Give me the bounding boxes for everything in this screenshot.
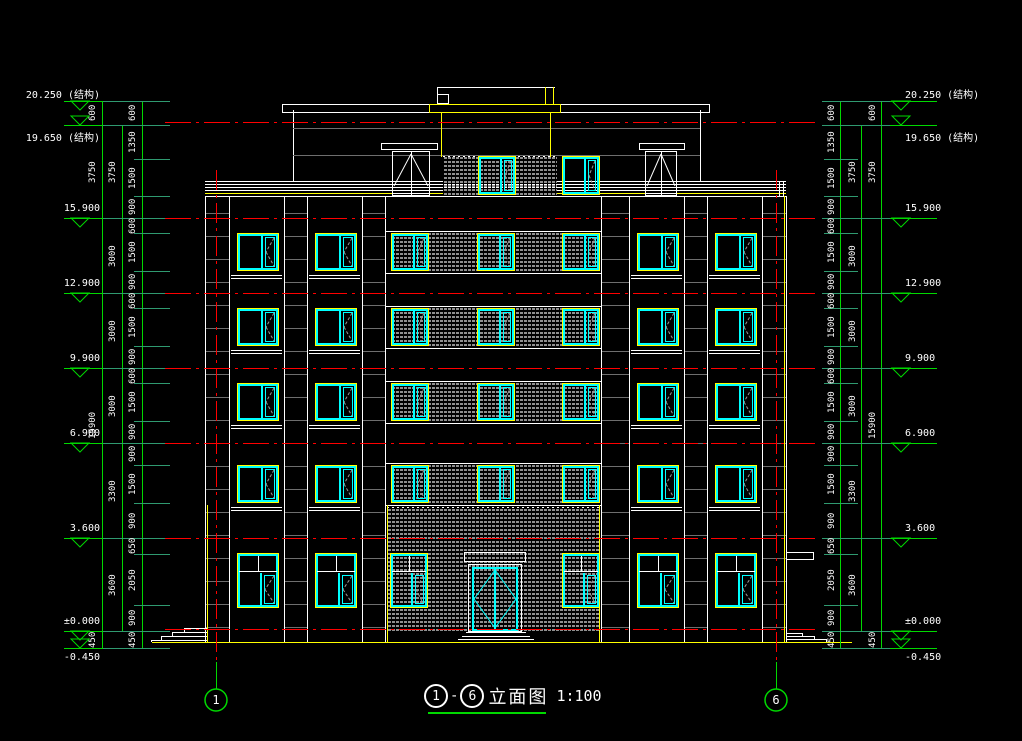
dimension-text: 2050 bbox=[127, 560, 139, 600]
title-scale: 1:100 bbox=[556, 687, 601, 705]
window-casement-pane bbox=[343, 469, 353, 499]
level-marker-text: 6.900 bbox=[2, 428, 100, 439]
spandrel-sill-line bbox=[309, 507, 360, 508]
dimension-tick bbox=[134, 233, 170, 234]
title-axis-bubble-from: 1 bbox=[424, 684, 448, 708]
dimension-tick bbox=[134, 159, 170, 160]
dimension-tick bbox=[134, 605, 170, 606]
spandrel-sill-line bbox=[631, 350, 682, 351]
level-marker-line bbox=[64, 631, 103, 632]
drawing-title: 1 - 6 立面图 1:100 bbox=[424, 683, 602, 709]
spandrel-sill-line bbox=[631, 510, 682, 511]
left-steps-tread bbox=[172, 632, 208, 633]
building-left-edge-yellow bbox=[207, 505, 208, 642]
level-marker-line bbox=[890, 368, 937, 369]
center-section-edge bbox=[601, 196, 602, 642]
dimension-text: 450 bbox=[826, 620, 838, 660]
window-mullion bbox=[739, 236, 741, 268]
spandrel-sill-line bbox=[709, 510, 760, 511]
window-mullion bbox=[661, 311, 663, 343]
window-mullion bbox=[413, 468, 415, 500]
dimension-text: 3000 bbox=[847, 236, 859, 276]
title-text: 立面图 bbox=[488, 683, 548, 709]
side-canopy-slab bbox=[786, 552, 814, 560]
level-marker-line bbox=[64, 125, 103, 126]
level-marker-text: 12.900 bbox=[2, 278, 100, 289]
penthouse-canopy bbox=[639, 143, 685, 150]
window-casement-pane bbox=[417, 312, 425, 342]
level-marker-triangle bbox=[71, 293, 89, 302]
dimension-text: 2050 bbox=[826, 560, 838, 600]
spandrel-sill-line bbox=[309, 510, 360, 511]
window-mullion bbox=[261, 468, 263, 500]
center-spandrel-line bbox=[385, 306, 601, 307]
window-mullion bbox=[261, 386, 263, 418]
level-marker-text: -0.450 bbox=[905, 652, 1020, 663]
dimension-tick bbox=[134, 196, 170, 197]
dimension-text: 3750 bbox=[87, 152, 99, 192]
dimension-tick bbox=[134, 383, 170, 384]
building-right-edge-yellow bbox=[784, 196, 785, 642]
level-marker-text: 15.900 bbox=[2, 203, 100, 214]
spandrel-sill-line bbox=[231, 425, 282, 426]
window-casement-pane bbox=[588, 387, 596, 417]
window-strip-edge bbox=[762, 196, 763, 642]
dimension-text: 3600 bbox=[847, 565, 859, 605]
window-top-mullion bbox=[258, 556, 259, 571]
penthouse-door-louver bbox=[646, 193, 676, 194]
grid-axis-stem bbox=[216, 662, 217, 689]
spandrel-sill-line bbox=[631, 428, 682, 429]
bulkhead-yellow-drop bbox=[441, 113, 442, 157]
window-top-mullion bbox=[581, 556, 582, 571]
window-mullion bbox=[499, 311, 501, 343]
window-casement-pane bbox=[665, 387, 675, 417]
window-mullion bbox=[739, 311, 741, 343]
left-steps-tread bbox=[151, 640, 208, 641]
level-marker-text: 3.600 bbox=[2, 523, 100, 534]
spandrel-sill-line bbox=[309, 353, 360, 354]
dimension-tick bbox=[134, 346, 170, 347]
spandrel-sill-line bbox=[309, 275, 360, 276]
window-casement-pane bbox=[503, 469, 511, 499]
right-steps-riser bbox=[814, 636, 815, 639]
window-transom bbox=[239, 571, 277, 572]
window-casement-pane bbox=[343, 237, 353, 267]
window-strip-edge bbox=[707, 196, 708, 642]
center-spandrel-line bbox=[385, 381, 601, 382]
level-marker-line bbox=[890, 218, 937, 219]
level-marker-line bbox=[890, 293, 937, 294]
window-mullion bbox=[411, 573, 413, 605]
window-casement-pane bbox=[264, 575, 275, 604]
level-marker-triangle bbox=[892, 538, 910, 547]
window-mullion bbox=[584, 468, 586, 500]
dimension-chain-line bbox=[881, 101, 882, 648]
level-marker-line bbox=[890, 443, 937, 444]
dimension-text: 3600 bbox=[107, 565, 119, 605]
spandrel-sill-line bbox=[631, 507, 682, 508]
spandrel-sill-line bbox=[631, 353, 682, 354]
window-transom bbox=[717, 571, 755, 572]
dimension-text: 600 bbox=[867, 93, 879, 133]
entrance-sign-board bbox=[464, 552, 526, 562]
level-marker-triangle bbox=[71, 538, 89, 547]
window-casement-pane bbox=[503, 387, 511, 417]
grid-bubble-number: 1 bbox=[206, 693, 226, 707]
window-casement-pane bbox=[588, 237, 596, 267]
window-mullion bbox=[584, 386, 586, 418]
level-marker-text: 9.900 bbox=[905, 353, 1020, 364]
level-marker-triangle bbox=[892, 218, 910, 227]
level-marker-text: 19.650 (结构) bbox=[905, 129, 1020, 144]
window-casement-pane bbox=[588, 160, 596, 191]
window-strip-edge bbox=[684, 196, 685, 642]
window-casement-pane bbox=[265, 312, 275, 342]
spandrel-sill-line bbox=[309, 425, 360, 426]
window-transom bbox=[639, 571, 677, 572]
window-mullion bbox=[738, 573, 740, 605]
level-marker-text: -0.450 bbox=[2, 652, 100, 663]
window-transom bbox=[317, 571, 355, 572]
hatch-top-dotted bbox=[387, 507, 599, 508]
dimension-text: 1500 bbox=[127, 464, 139, 504]
window-mullion bbox=[413, 386, 415, 418]
spandrel-sill-line bbox=[709, 507, 760, 508]
spandrel-sill-line bbox=[631, 425, 682, 426]
level-marker-line bbox=[64, 368, 103, 369]
dimension-chain-line bbox=[840, 101, 841, 648]
dimension-text: 3750 bbox=[847, 152, 859, 192]
dimension-text: 1500 bbox=[826, 464, 838, 504]
dimension-text: 3000 bbox=[107, 311, 119, 351]
dimension-text: 1350 bbox=[826, 122, 838, 162]
parapet-top-line bbox=[205, 196, 786, 197]
spandrel-sill-line bbox=[231, 275, 282, 276]
center-spandrel-line bbox=[385, 423, 601, 424]
penthouse-band-line bbox=[293, 128, 700, 129]
dimension-tick bbox=[134, 271, 170, 272]
spandrel-sill-line bbox=[709, 425, 760, 426]
penthouse-door-louver bbox=[646, 190, 676, 191]
dimension-text: 1350 bbox=[127, 122, 139, 162]
dimension-text: 3000 bbox=[847, 311, 859, 351]
left-steps-riser bbox=[184, 628, 185, 632]
level-marker-triangle bbox=[892, 101, 910, 110]
window-mullion bbox=[661, 236, 663, 268]
window-mullion bbox=[661, 468, 663, 500]
window-top-mullion bbox=[409, 556, 410, 571]
level-marker-line bbox=[64, 538, 103, 539]
center-spandrel-line bbox=[385, 505, 601, 506]
window-mullion bbox=[339, 386, 341, 418]
left-steps-tread bbox=[161, 636, 208, 637]
elevation-drawing-canvas: 1660013501500900600150090060015009006001… bbox=[0, 0, 1022, 741]
spandrel-sill-line bbox=[231, 353, 282, 354]
entrance-door-mullion bbox=[494, 569, 496, 629]
level-marker-text: 20.250 (结构) bbox=[905, 86, 1020, 101]
right-steps-tread bbox=[786, 639, 826, 640]
left-steps-riser bbox=[161, 636, 162, 640]
window-top-mullion bbox=[658, 556, 659, 571]
window-mullion bbox=[338, 573, 340, 605]
window-casement-pane bbox=[343, 312, 353, 342]
center-spandrel-line bbox=[385, 463, 601, 464]
bulkhead-box bbox=[437, 94, 449, 104]
bulkhead-yellow-edge bbox=[545, 87, 546, 104]
window-mullion bbox=[660, 573, 662, 605]
level-marker-triangle bbox=[892, 368, 910, 377]
penthouse-canopy bbox=[381, 143, 438, 150]
level-marker-text: 19.650 (结构) bbox=[2, 129, 100, 144]
center-section-edge-yellow bbox=[387, 505, 388, 642]
window-casement-pane bbox=[265, 387, 275, 417]
spandrel-sill-line bbox=[231, 428, 282, 429]
grid-axis-stem bbox=[776, 662, 777, 689]
window-casement-pane bbox=[588, 312, 596, 342]
window-strip-edge bbox=[229, 196, 230, 642]
window-casement-pane bbox=[743, 237, 753, 267]
level-marker-triangle bbox=[892, 116, 910, 125]
center-spandrel-line bbox=[385, 273, 601, 274]
level-marker-text: ±0.000 bbox=[2, 616, 100, 627]
window-mullion bbox=[413, 311, 415, 343]
spandrel-sill-line bbox=[709, 278, 760, 279]
window-casement-pane bbox=[743, 387, 753, 417]
dimension-tick bbox=[134, 465, 170, 466]
railing-post bbox=[779, 181, 780, 196]
penthouse-door-mullion bbox=[661, 152, 662, 195]
window-casement-pane bbox=[417, 469, 425, 499]
window-casement-pane bbox=[417, 387, 425, 417]
window-mullion bbox=[500, 159, 502, 192]
penthouse-door-louver bbox=[646, 187, 676, 188]
right-steps-riser bbox=[802, 633, 803, 636]
level-marker-line bbox=[64, 443, 103, 444]
bulkhead-yellow-edge bbox=[553, 87, 554, 104]
right-steps-tread bbox=[786, 636, 814, 637]
bulkhead-yellow-drop bbox=[550, 113, 551, 157]
window-casement-pane bbox=[665, 237, 675, 267]
window-strip-edge bbox=[284, 196, 285, 642]
window-mullion bbox=[739, 468, 741, 500]
window-mullion bbox=[584, 236, 586, 268]
window-casement-pane bbox=[342, 575, 353, 604]
spandrel-sill-line bbox=[231, 350, 282, 351]
level-marker-triangle bbox=[892, 631, 910, 640]
window-mullion bbox=[339, 311, 341, 343]
window-mullion bbox=[260, 573, 262, 605]
level-marker-text: 3.600 bbox=[905, 523, 1020, 534]
window-casement-pane bbox=[415, 575, 424, 604]
window-casement-pane bbox=[504, 160, 512, 191]
center-spandrel-line bbox=[385, 231, 601, 232]
level-marker-triangle bbox=[892, 293, 910, 302]
level-marker-line bbox=[890, 538, 937, 539]
window-casement-pane bbox=[343, 387, 353, 417]
title-separator: - bbox=[450, 688, 458, 704]
window-casement-pane bbox=[665, 312, 675, 342]
roof-slab-yellow-band bbox=[429, 104, 561, 113]
window-mullion bbox=[339, 236, 341, 268]
window-mullion bbox=[739, 386, 741, 418]
window-casement-pane bbox=[587, 575, 596, 604]
dimension-text: 3000 bbox=[847, 386, 859, 426]
window-casement-pane bbox=[664, 575, 675, 604]
dimension-tick bbox=[134, 503, 170, 504]
window-mullion bbox=[499, 236, 501, 268]
dimension-text: 3000 bbox=[107, 236, 119, 276]
window-casement-pane bbox=[417, 237, 425, 267]
title-axis-bubble-to: 6 bbox=[460, 684, 484, 708]
window-strip-edge bbox=[629, 196, 630, 642]
level-marker-text: 20.250 (结构) bbox=[2, 86, 100, 101]
penthouse-door-mullion bbox=[411, 152, 412, 195]
dimension-text: 3750 bbox=[867, 152, 879, 192]
center-spandrel-line bbox=[385, 348, 601, 349]
level-marker-text: ±0.000 bbox=[905, 616, 1020, 627]
window-transom bbox=[564, 571, 598, 572]
dimension-text: 15900 bbox=[87, 395, 99, 455]
level-marker-text: 15.900 bbox=[905, 203, 1020, 214]
window-casement-pane bbox=[742, 575, 753, 604]
building-right-edge bbox=[786, 196, 787, 642]
spandrel-sill-line bbox=[309, 278, 360, 279]
window-mullion bbox=[339, 468, 341, 500]
right-steps-tread bbox=[786, 633, 802, 634]
dimension-tick bbox=[134, 308, 170, 309]
spandrel-sill-line bbox=[709, 275, 760, 276]
spandrel-sill-line bbox=[231, 278, 282, 279]
level-marker-triangle bbox=[892, 639, 910, 648]
center-section-edge bbox=[385, 196, 386, 642]
dimension-text: 450 bbox=[127, 620, 139, 660]
window-mullion bbox=[413, 236, 415, 268]
dimension-text: 3300 bbox=[847, 471, 859, 511]
dimension-chain-line bbox=[142, 101, 143, 648]
window-mullion bbox=[661, 386, 663, 418]
building-left-edge bbox=[205, 196, 206, 642]
title-underline bbox=[428, 712, 546, 714]
spandrel-sill-line bbox=[631, 278, 682, 279]
ground-line-yellow bbox=[152, 642, 852, 643]
window-mullion bbox=[261, 311, 263, 343]
level-marker-line bbox=[64, 648, 103, 649]
window-mullion bbox=[499, 386, 501, 418]
level-marker-line bbox=[64, 101, 103, 102]
left-steps-riser bbox=[172, 632, 173, 636]
penthouse-door-louver bbox=[393, 187, 429, 188]
level-marker-triangle bbox=[71, 218, 89, 227]
level-marker-line bbox=[890, 648, 937, 649]
dimension-text: 3300 bbox=[107, 471, 119, 511]
window-mullion bbox=[584, 311, 586, 343]
spandrel-sill-line bbox=[709, 350, 760, 351]
level-marker-text: 12.900 bbox=[905, 278, 1020, 289]
level-marker-line bbox=[890, 101, 937, 102]
dimension-chain-line bbox=[102, 101, 103, 648]
spandrel-sill-line bbox=[309, 350, 360, 351]
dimension-chain-line bbox=[861, 125, 862, 631]
level-marker-line bbox=[64, 218, 103, 219]
penthouse-door-louver bbox=[393, 190, 429, 191]
railing-post bbox=[783, 181, 784, 196]
dimension-chain-line bbox=[122, 125, 123, 631]
penthouse-left-wall bbox=[293, 110, 294, 181]
level-marker-triangle bbox=[892, 443, 910, 452]
window-casement-pane bbox=[743, 469, 753, 499]
spandrel-sill-line bbox=[231, 510, 282, 511]
spandrel-sill-line bbox=[709, 353, 760, 354]
window-strip-edge bbox=[362, 196, 363, 642]
window-strip-edge bbox=[307, 196, 308, 642]
window-casement-pane bbox=[265, 237, 275, 267]
spandrel-sill-line bbox=[709, 428, 760, 429]
window-casement-pane bbox=[503, 312, 511, 342]
bulkhead-top-line bbox=[437, 87, 555, 88]
dimension-text: 3750 bbox=[107, 152, 119, 192]
window-casement-pane bbox=[743, 312, 753, 342]
dimension-text: 15900 bbox=[867, 395, 879, 455]
window-mullion bbox=[261, 236, 263, 268]
dimension-text: 3000 bbox=[107, 386, 119, 426]
entrance-step bbox=[466, 632, 526, 633]
level-marker-triangle bbox=[71, 368, 89, 377]
dimension-text: 450 bbox=[867, 620, 879, 660]
window-casement-pane bbox=[665, 469, 675, 499]
spandrel-sill-line bbox=[631, 275, 682, 276]
window-mullion bbox=[499, 468, 501, 500]
window-transom bbox=[392, 571, 426, 572]
grid-bubble-number: 6 bbox=[766, 693, 786, 707]
dimension-tick bbox=[134, 421, 170, 422]
spandrel-sill-line bbox=[309, 428, 360, 429]
dimension-tick bbox=[134, 554, 170, 555]
window-top-mullion bbox=[336, 556, 337, 571]
level-marker-text: 6.900 bbox=[905, 428, 1020, 439]
window-casement-pane bbox=[588, 469, 596, 499]
level-marker-line bbox=[890, 125, 937, 126]
window-mullion bbox=[584, 159, 586, 192]
window-casement-pane bbox=[265, 469, 275, 499]
window-mullion bbox=[583, 573, 585, 605]
window-casement-pane bbox=[503, 237, 511, 267]
entrance-step bbox=[462, 636, 530, 637]
entrance-step bbox=[458, 639, 534, 640]
level-marker-text: 9.900 bbox=[2, 353, 100, 364]
window-top-mullion bbox=[736, 556, 737, 571]
penthouse-right-wall bbox=[700, 110, 701, 181]
penthouse-door-louver bbox=[393, 193, 429, 194]
level-marker-line bbox=[890, 631, 937, 632]
level-marker-line bbox=[64, 293, 103, 294]
spandrel-sill-line bbox=[231, 507, 282, 508]
center-section-edge-yellow bbox=[599, 505, 600, 642]
